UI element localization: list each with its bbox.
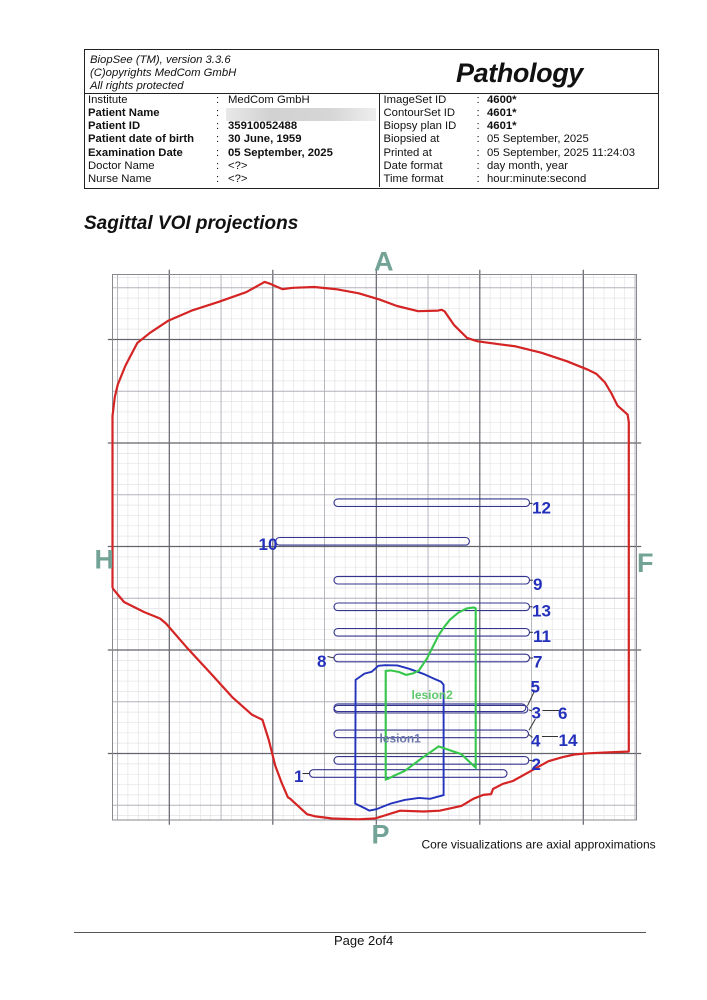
svg-text:Core visualizations are axial: Core visualizations are axial approximat… — [422, 838, 656, 852]
svg-text:1: 1 — [294, 767, 303, 786]
svg-text:5: 5 — [531, 678, 540, 697]
svg-text:11: 11 — [533, 627, 551, 646]
svg-text:lesion2: lesion2 — [412, 688, 454, 702]
svg-text:9: 9 — [533, 575, 542, 594]
svg-text:P: P — [372, 820, 390, 850]
svg-text:2: 2 — [532, 755, 541, 774]
svg-text:6: 6 — [558, 704, 567, 723]
svg-text:F: F — [637, 548, 654, 578]
svg-text:7: 7 — [533, 653, 542, 672]
svg-text:12: 12 — [532, 499, 551, 518]
svg-text:3: 3 — [532, 704, 541, 723]
svg-text:14: 14 — [559, 731, 578, 750]
svg-text:10: 10 — [259, 535, 278, 554]
svg-text:8: 8 — [317, 652, 326, 671]
svg-text:4: 4 — [531, 732, 541, 751]
svg-text:13: 13 — [532, 602, 551, 621]
svg-text:lesion1: lesion1 — [380, 732, 422, 746]
svg-text:H: H — [95, 545, 115, 575]
svg-text:A: A — [374, 246, 394, 276]
